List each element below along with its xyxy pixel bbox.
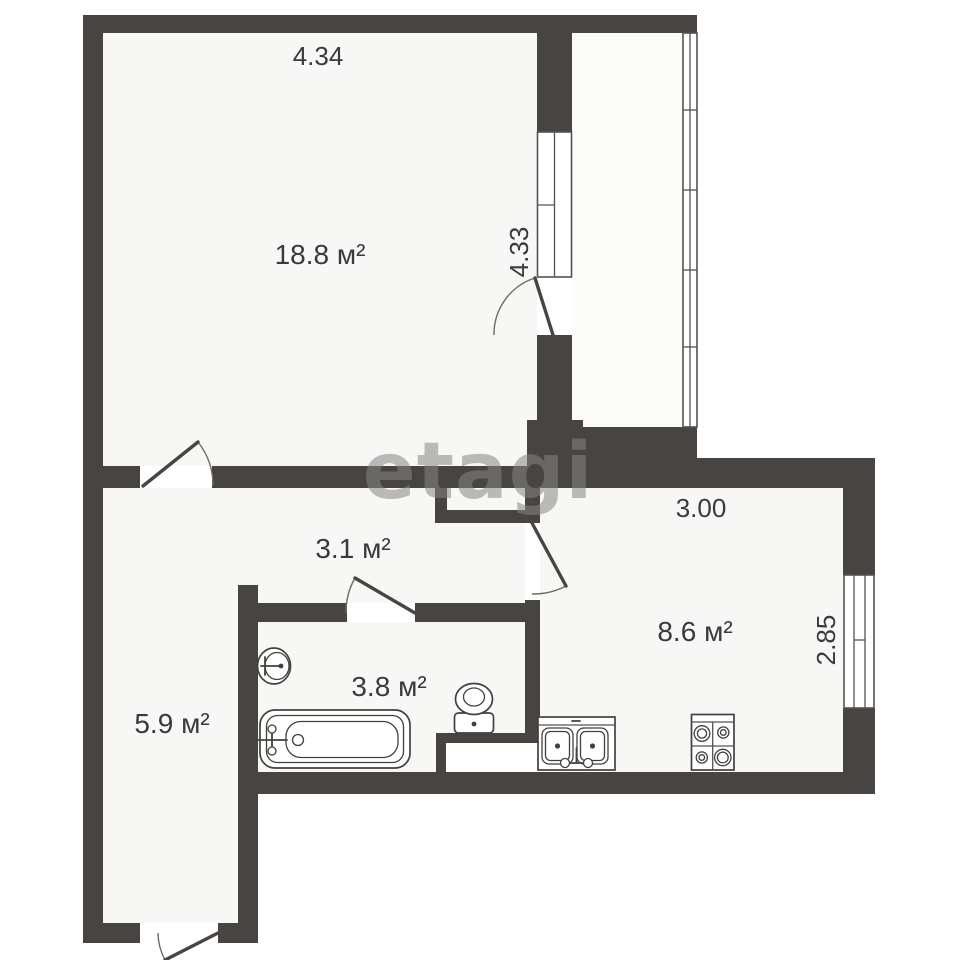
washbasin-icon: [258, 648, 291, 684]
wall-bathroom-left: [238, 585, 258, 943]
kitchen-window: [844, 575, 874, 708]
area-label-living: 18.8 м²: [275, 239, 366, 270]
area-label-hallway: 3.1 м²: [315, 533, 390, 564]
balcony-block-window: [538, 132, 572, 277]
balcony-glazing: [683, 33, 697, 427]
stove-icon: [692, 715, 735, 771]
wall-mid-left: [103, 466, 140, 488]
wall-kitchen-right-upper: [843, 488, 875, 575]
dimension-living-width: 4.34: [293, 41, 344, 71]
wall-left: [83, 15, 103, 943]
balcony-floor: [572, 33, 683, 427]
dimension-kitchen-depth: 2.85: [811, 615, 841, 666]
area-label-bathroom: 3.8 м²: [351, 671, 426, 702]
wall-vent-left: [436, 733, 446, 772]
duct-niche: [446, 743, 540, 772]
dimension-balcony-height: 4.33: [504, 227, 534, 278]
kitchen-sink-icon: [538, 717, 615, 770]
watermark-etagi: etagi: [363, 427, 593, 517]
floor-plan: 4.34 18.8 м² 4.33 3.00 3.1 м² 8.6 м² 2.8…: [0, 0, 960, 960]
bathtub-icon: [258, 710, 410, 768]
wall-balcony-divider-bottom: [537, 335, 572, 427]
entry-room-floor: [103, 603, 238, 923]
wall-entry-bottom-left: [83, 923, 140, 943]
dimension-kitchen-width: 3.00: [676, 493, 727, 523]
wall-bathroom-top-left: [258, 603, 347, 622]
wall-balcony-divider-top: [537, 33, 572, 132]
wall-vent-top: [436, 733, 540, 743]
floor-plan-page: 4.34 18.8 м² 4.33 3.00 3.1 м² 8.6 м² 2.8…: [0, 0, 960, 960]
area-label-kitchen: 8.6 м²: [657, 616, 732, 647]
entrance-door: [158, 933, 218, 960]
wall-entry-bottom-right: [218, 923, 258, 943]
wall-top: [83, 15, 697, 33]
wall-bottom-main: [238, 772, 875, 794]
toilet-icon: [455, 684, 494, 734]
wall-bathroom-top-right: [415, 603, 540, 622]
area-label-entry: 5.9 м²: [134, 708, 209, 739]
